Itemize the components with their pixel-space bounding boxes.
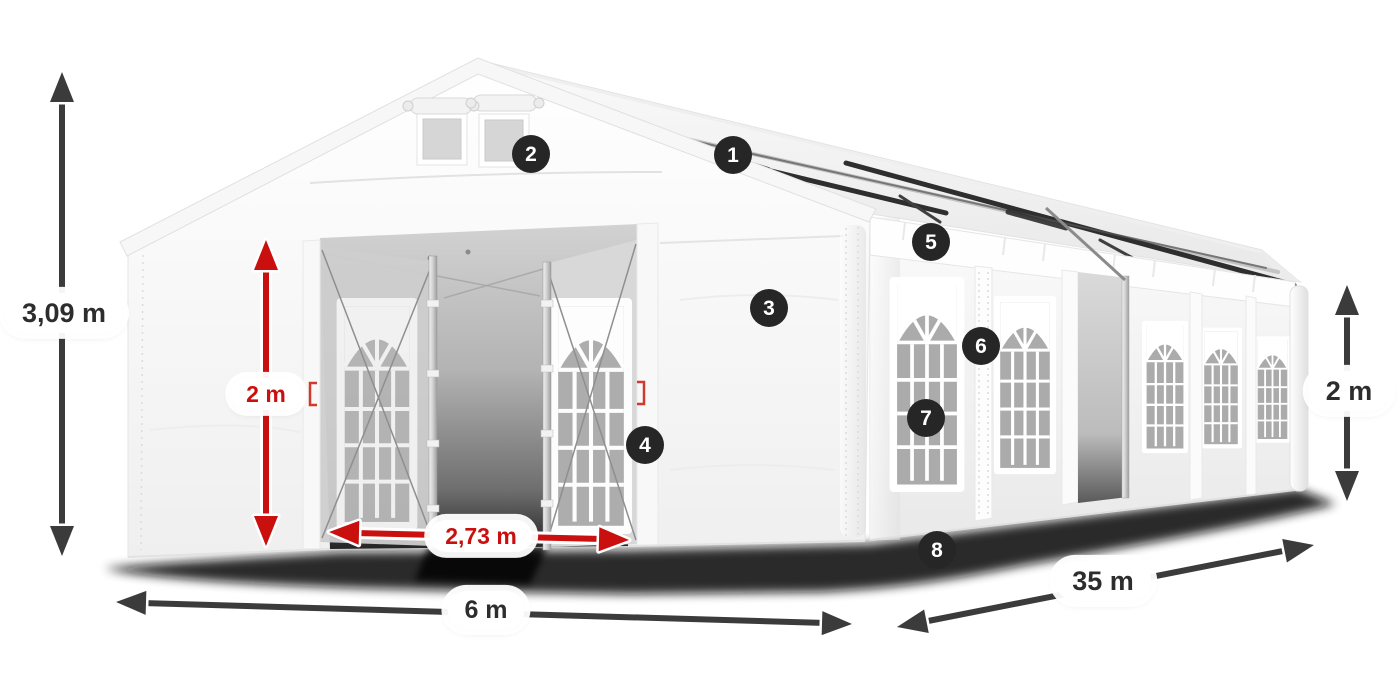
dimension-label-total-height: 3,09 m — [5, 293, 123, 333]
vent-roller — [473, 95, 537, 111]
door-window — [550, 298, 632, 534]
front-corner-pillar — [840, 225, 866, 537]
dimension-label-side-wall-height: 2 m — [1309, 371, 1390, 411]
arched-window — [890, 277, 965, 492]
callout-7-window: 7 — [907, 399, 945, 437]
callout-8-skirt: 8 — [918, 531, 956, 569]
callout-1-roof: 1 — [714, 136, 752, 174]
arched-window — [1254, 336, 1291, 442]
callout-5-eave: 5 — [912, 223, 950, 261]
rear-corner-pillar — [1290, 286, 1308, 491]
callout-2-gable-vent: 2 — [512, 135, 550, 173]
dimension-label-side-length: 35 m — [1055, 561, 1151, 601]
arched-window — [994, 296, 1056, 474]
vent-roller — [410, 98, 472, 114]
arched-window — [1200, 328, 1242, 449]
tent-illustration — [0, 0, 1400, 700]
dimension-label-entrance-height: 2 m — [231, 378, 301, 410]
callout-3-front-wall: 3 — [750, 289, 788, 327]
tent-dimensions-diagram: 3,09 m 2 m 2,73 m 6 m 35 m 2 m 1 2 3 4 5… — [0, 0, 1400, 700]
front-entrance — [320, 224, 640, 550]
dimension-label-entrance-width: 2,73 m — [430, 520, 532, 552]
callout-6-side-panel: 6 — [962, 327, 1000, 365]
dimension-label-front-width: 6 m — [447, 591, 524, 629]
door-leaf-right — [541, 240, 637, 550]
callout-4-entrance: 4 — [626, 426, 664, 464]
door-leaf-left — [320, 246, 439, 548]
door-jamb-right — [637, 223, 658, 546]
arched-window — [1142, 321, 1188, 453]
door-jamb-left — [303, 240, 320, 549]
